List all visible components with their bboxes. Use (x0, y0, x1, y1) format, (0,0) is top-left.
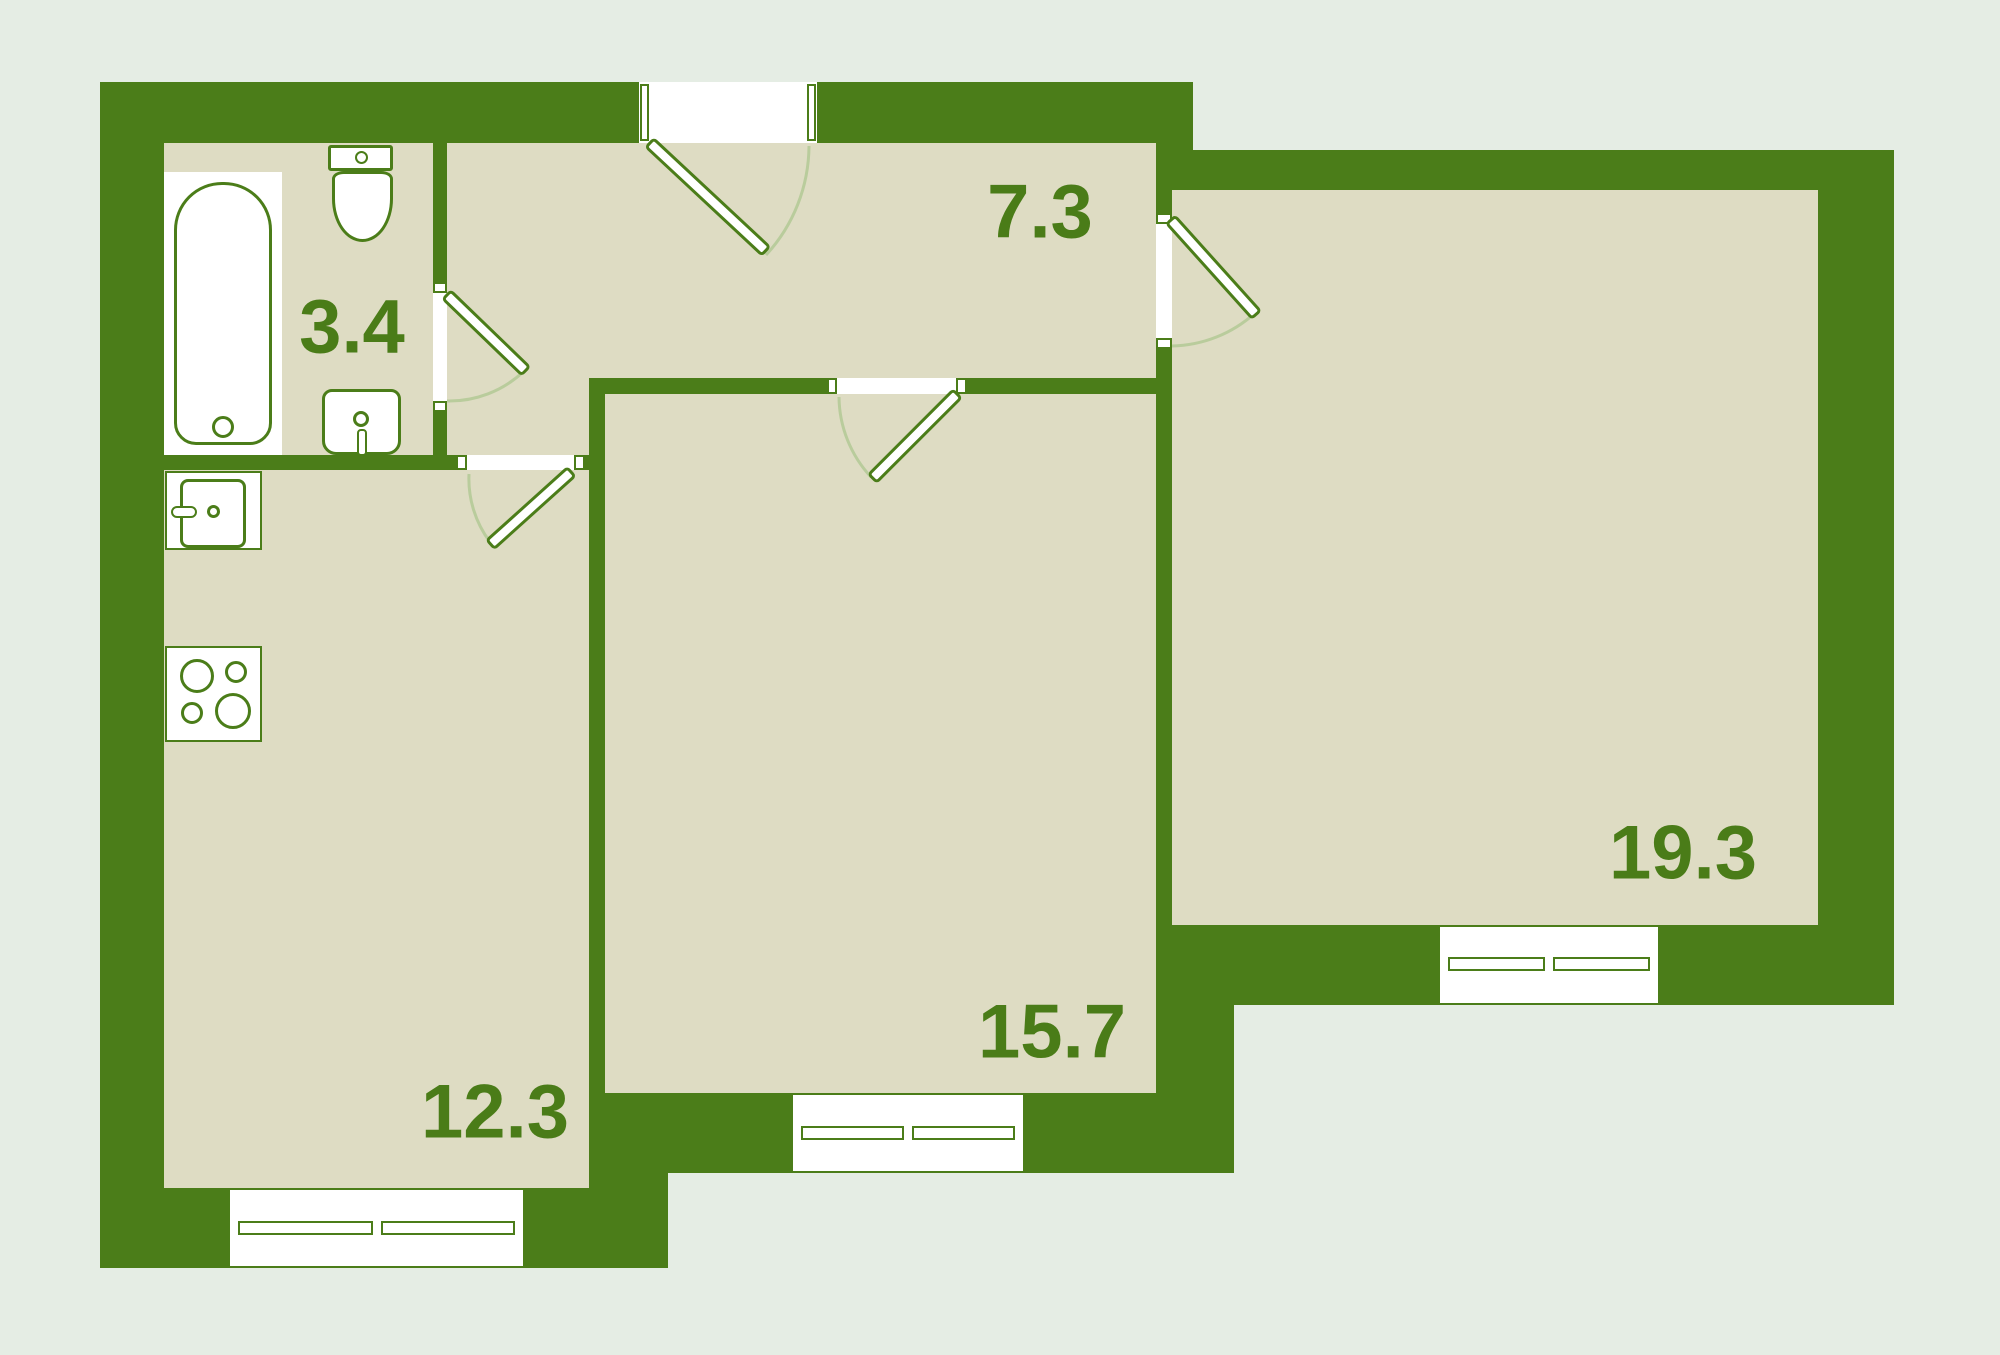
living-area-label: 19.3 (1609, 810, 1757, 897)
bedroom-door-leaf (869, 390, 961, 482)
hallway-area-label: 7.3 (987, 169, 1093, 256)
door-swing-arc (469, 474, 490, 542)
kitchen-area-label: 12.3 (421, 1069, 569, 1156)
door-swing-arc (447, 372, 523, 401)
floor-plan: 3.4 7.3 12.3 15.7 19.3 (0, 0, 2000, 1355)
door-swing-arc (1172, 313, 1255, 346)
bathroom-door-leaf (443, 291, 529, 375)
door-swing-arc (839, 397, 871, 477)
door-swing-arc (766, 146, 809, 255)
living-door-leaf (1167, 216, 1260, 318)
entrance-door-leaf (646, 139, 769, 255)
kitchen-door-leaf (487, 468, 575, 548)
bedroom-area-label: 15.7 (978, 989, 1126, 1076)
bathroom-area-label: 3.4 (299, 284, 405, 371)
